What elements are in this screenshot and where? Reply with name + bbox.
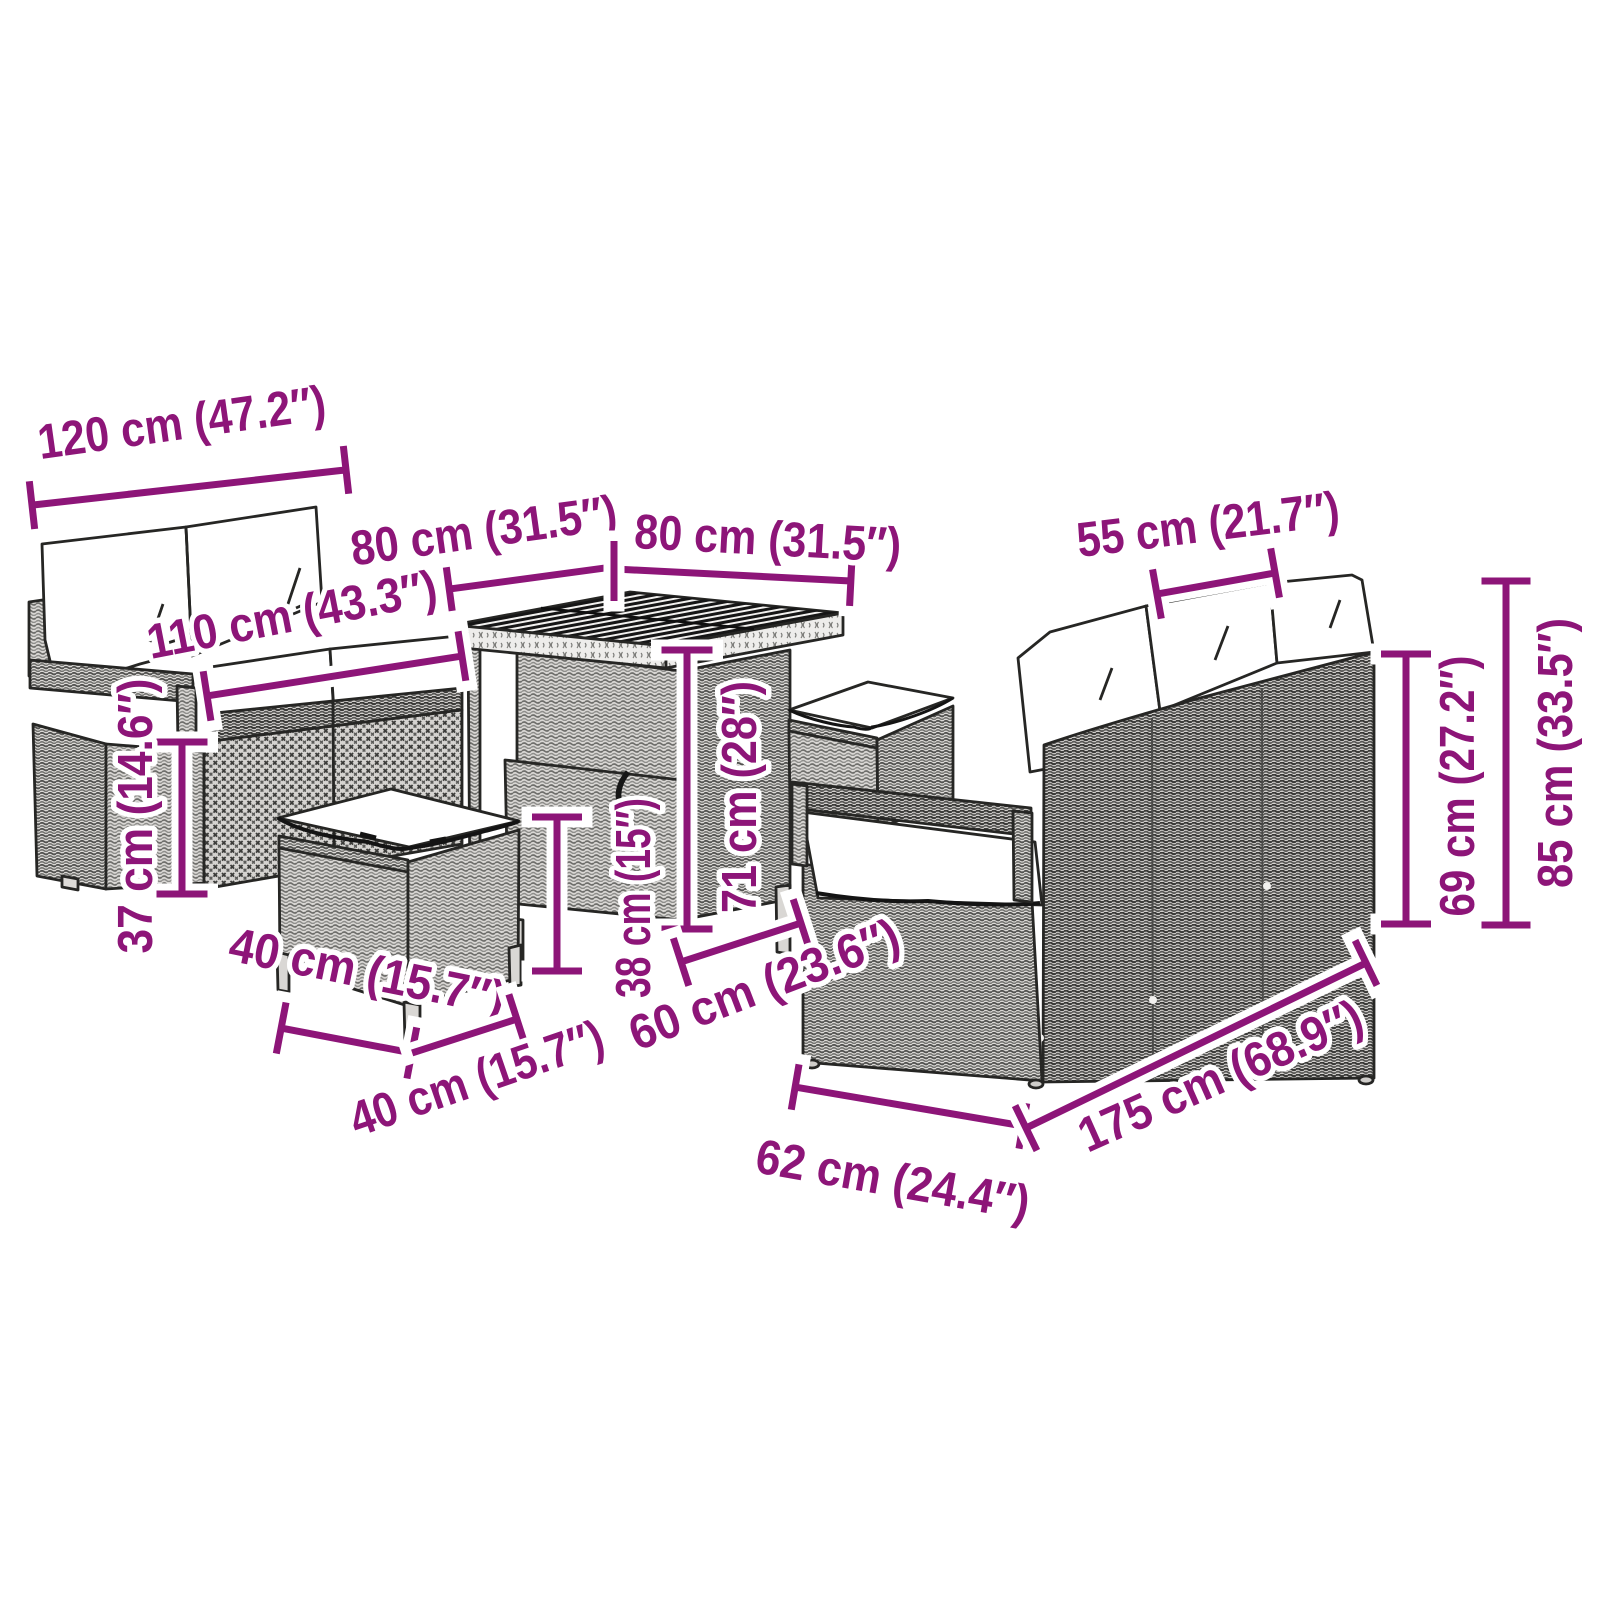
svg-text:69 cm (27.2″): 69 cm (27.2″) [1431, 656, 1485, 917]
svg-text:37 cm (14.6″): 37 cm (14.6″) [109, 679, 163, 954]
svg-text:38 cm (15″): 38 cm (15″) [607, 798, 661, 998]
svg-text:85 cm (33.5″): 85 cm (33.5″) [1529, 618, 1583, 888]
svg-text:71 cm (28″): 71 cm (28″) [713, 681, 767, 913]
